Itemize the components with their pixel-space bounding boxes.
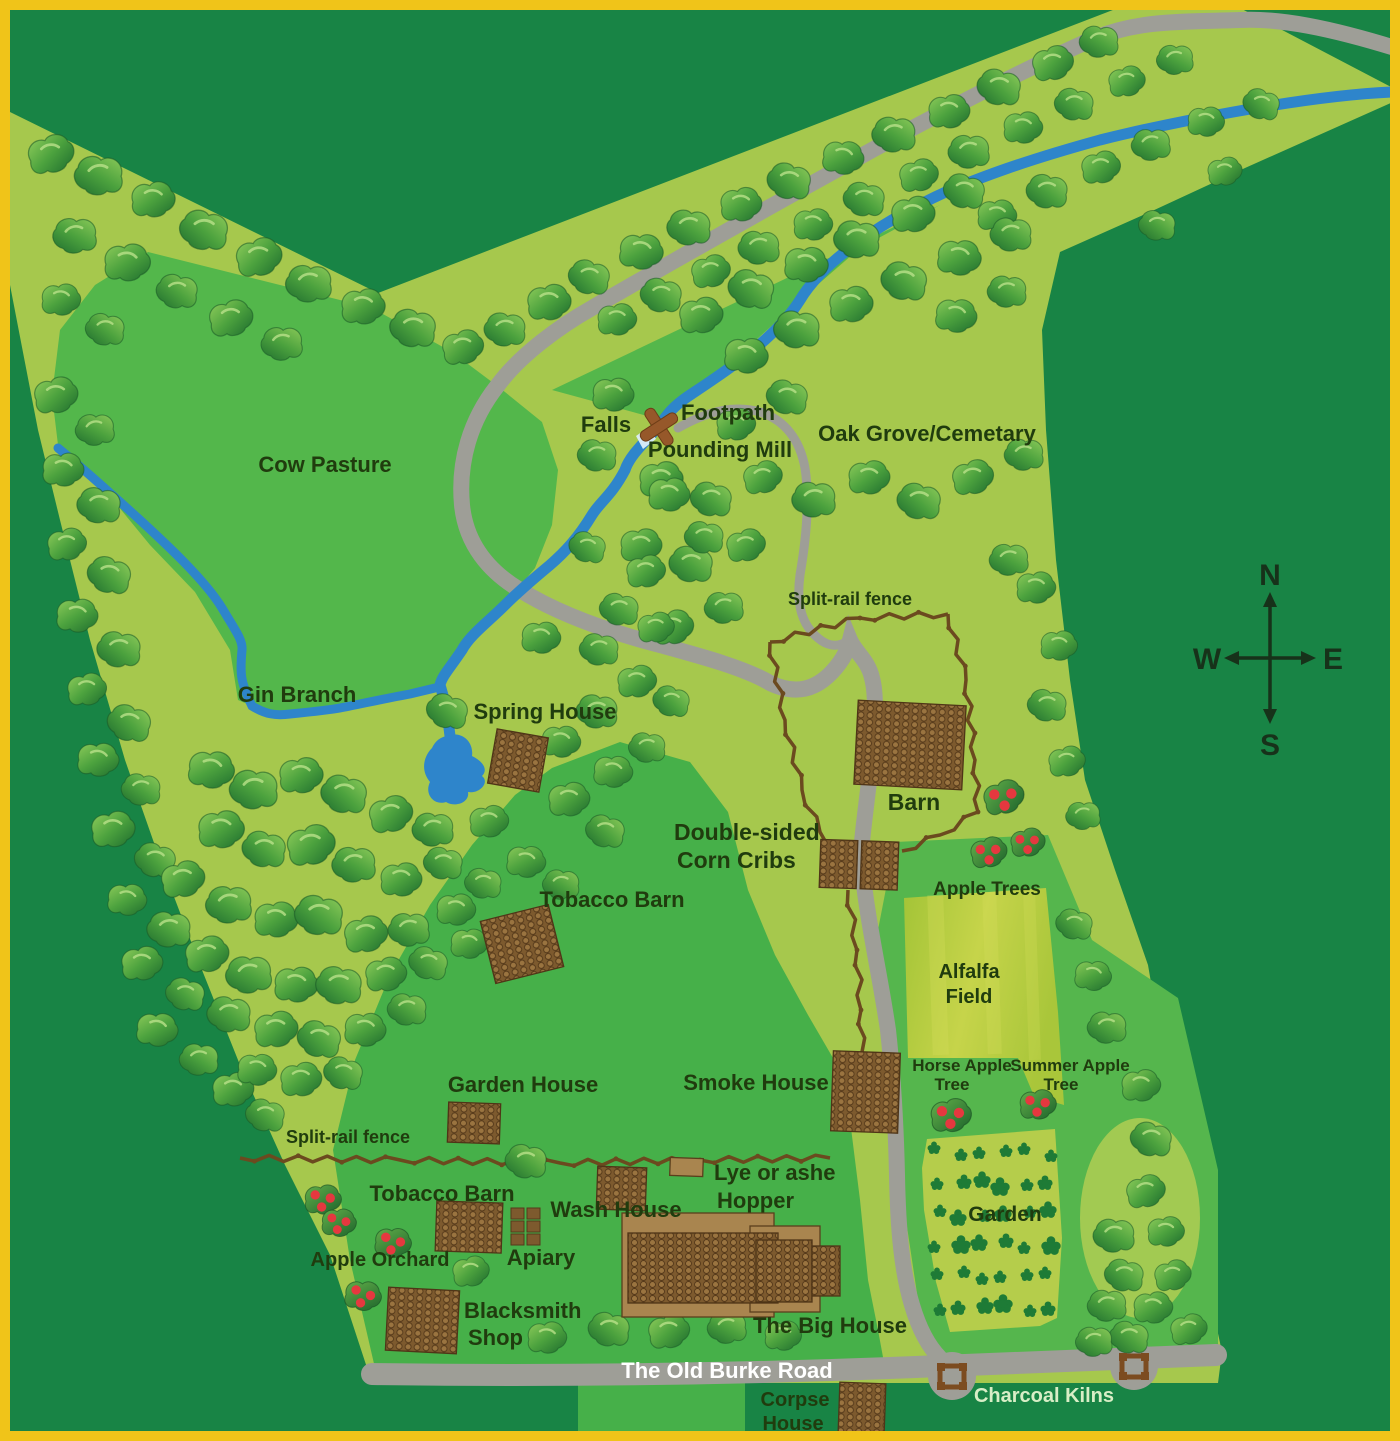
map-label-pounding-mill: Pounding Mill [648,437,792,462]
fence-post-icon [961,815,966,820]
map-label-horse-apple-line2: Tree [935,1075,970,1094]
fence-post-icon [970,771,975,776]
fence-post-icon [499,1163,504,1168]
map-label-garden: Garden [968,1203,1042,1226]
map-label-big-house: The Big House [753,1313,907,1338]
farm-map-page: N S W E Cow PastureGin BranchFallsFootpa… [0,0,1400,1441]
map-label-charcoal-kilns: Charcoal Kilns [974,1385,1114,1407]
map-label-barn: Barn [888,789,940,815]
garden-area [922,1129,1062,1332]
building-tobacco-barn-south [435,1201,503,1253]
fence-post-icon [924,835,929,840]
map-label-tobacco-barn-north: Tobacco Barn [539,887,684,912]
map-label-spring-house: Spring House [473,699,616,724]
map-label-alfalfa-line2: Field [946,986,993,1008]
map-label-oak-grove-cemetary: Oak Grove/Cemetary [818,421,1036,446]
map-label-lye-hopper-line2: Hopper [717,1188,794,1213]
map-label-apple-trees: Apple Trees [933,879,1041,900]
fence-post-icon [252,1159,257,1164]
fence-post-icon [456,1156,461,1161]
fence-post-icon [855,948,860,953]
fence-post-icon [383,1154,388,1159]
map-label-corpse-house-line1: Corpse [761,1389,830,1411]
fence-post-icon [656,1161,661,1166]
building-blacksmith-shop [385,1287,459,1354]
fence-post-icon [963,664,968,669]
map-label-old-burke-road: The Old Burke Road [621,1358,832,1383]
fence-post-icon [339,1160,344,1165]
fence-post-icon [872,618,877,623]
fence-post-icon [781,639,786,644]
fence-post-icon [412,1161,417,1166]
fence-post-icon [962,691,967,696]
fence-post-icon [845,903,850,908]
fence-post-icon [859,1008,864,1013]
map-label-lye-hopper-line1: Lye or ashe [714,1160,835,1185]
map-label-wash-house: Wash House [550,1197,681,1222]
map-label-blacksmith-line1: Blacksmith [464,1298,581,1323]
fence-post-icon [755,1154,760,1159]
fence-post-icon [781,691,786,696]
fence-post-icon [296,1153,301,1158]
map-label-blacksmith-line2: Shop [468,1325,523,1350]
compass-west-label: W [1193,643,1222,676]
map-label-apple-orchard: Apple Orchard [311,1249,450,1271]
fence-post-icon [803,803,808,808]
map-label-summer-apple-line2: Tree [1044,1075,1079,1094]
map-label-falls: Falls [581,412,631,437]
building-smoke-house [831,1051,901,1133]
fence-post-icon [572,1163,577,1168]
fence-post-icon [767,653,772,658]
fence-post-icon [614,1156,619,1161]
building-big-house [622,1213,840,1317]
map-label-corn-cribs-line1: Double-sided [674,819,820,845]
building-garden-house [447,1102,500,1144]
fence-post-icon [856,1022,861,1027]
building-lye-hopper [670,1157,704,1176]
fence-post-icon [916,610,921,615]
map-label-split-rail-fence-west: Split-rail fence [286,1127,410,1147]
map-label-summer-apple-line1: Summer Apple [1010,1056,1129,1075]
map-label-garden-house: Garden House [448,1072,598,1097]
map-label-footpath: Footpath [681,400,775,425]
map-label-horse-apple-line1: Horse Apple [912,1056,1012,1075]
fence-post-icon [973,731,978,736]
map-label-gin-branch: Gin Branch [238,682,357,707]
fence-post-icon [858,616,863,621]
fence-post-icon [783,732,788,737]
fence-post-icon [799,773,804,778]
map-label-alfalfa-line1: Alfalfa [938,961,1000,983]
fence-post-icon [818,623,823,628]
fence-post-icon [946,626,951,631]
map-label-corn-cribs-line2: Corn Cribs [677,847,796,873]
map-label-smoke-house: Smoke House [683,1070,829,1095]
building-spring-house [488,729,549,792]
compass-south-label: S [1260,729,1280,762]
map-label-tobacco-barn-south: Tobacco Barn [369,1181,514,1206]
compass-east-label: E [1323,643,1343,676]
fence-post-icon [853,963,858,968]
map-label-split-rail-fence-north: Split-rail fence [788,589,912,609]
compass-north-label: N [1259,559,1281,592]
map-label-cow-pasture: Cow Pasture [258,452,391,477]
farm-map: N S W E Cow PastureGin BranchFallsFootpa… [0,0,1400,1441]
building-corpse-house [838,1382,886,1434]
building-barn [854,700,966,790]
map-label-apiary: Apiary [507,1245,576,1270]
